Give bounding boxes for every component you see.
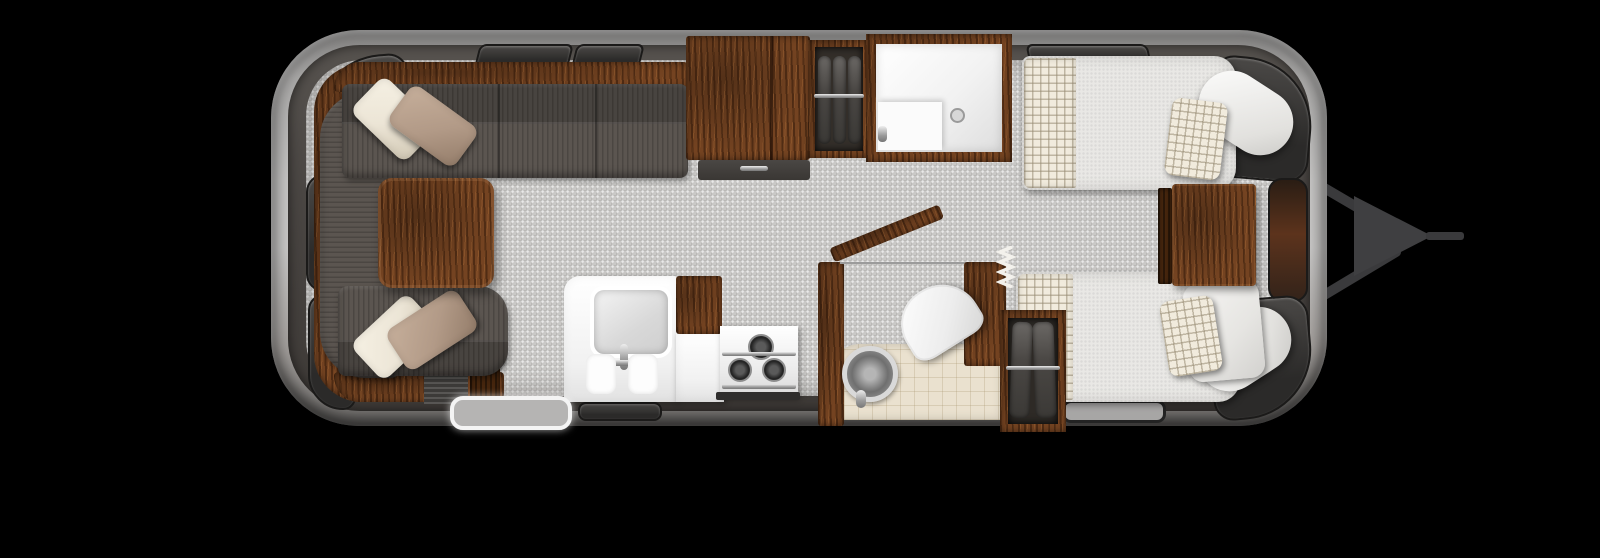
bed-top-plaid-pillow <box>1163 97 1228 181</box>
bedroom-area <box>0 0 1600 558</box>
nightstand <box>1172 184 1256 286</box>
entry-step <box>450 396 572 430</box>
wardrobe-rod <box>1006 366 1060 370</box>
hanging-clothes <box>1032 322 1056 419</box>
wardrobe-front <box>1000 310 1066 432</box>
nightstand-step <box>1158 188 1172 284</box>
floor-plan-canvas <box>0 0 1600 558</box>
hanging-clothes <box>1009 322 1032 419</box>
bed-bottom-plaid-pillow <box>1158 294 1223 378</box>
bed-top-plaid-runner <box>1024 58 1076 188</box>
